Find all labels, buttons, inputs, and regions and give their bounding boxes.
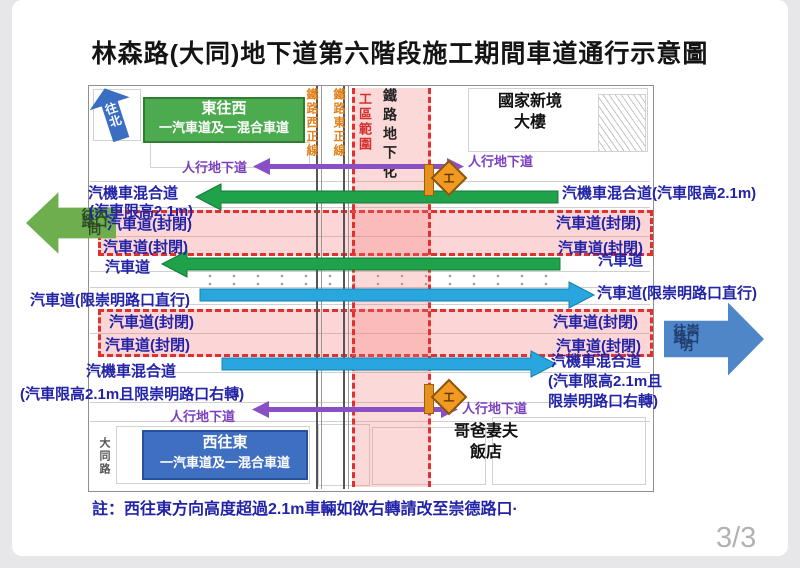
lane-label-right-car-w: 汽車道 xyxy=(598,249,643,270)
westbound-car-lane-arrow xyxy=(162,251,560,277)
footnote: 註：西往東方向高度超過2.1m車輛如欲右轉請改至崇德路口· xyxy=(92,495,518,519)
lane-label-left-closed-2: 汽車道(封閉) xyxy=(103,236,188,257)
ped-arrowhead-top-left xyxy=(253,158,270,175)
eastbound-car-lane-arrow xyxy=(200,282,594,308)
lane-label-right-mixed-w: 汽機車混合道(汽車限高2.1m) xyxy=(562,182,756,203)
ped-underpass-label-nw: 人行地下道 xyxy=(182,157,247,176)
pedestrian-underpass-arrow-bottom xyxy=(267,407,443,412)
datong-road-label: 大同路 xyxy=(96,437,112,476)
lane-label-right-mixed-e: 汽機車混合道 xyxy=(551,350,641,371)
ped-underpass-label-se: 人行地下道 xyxy=(462,398,527,417)
lane-label-left-closed-1: 汽車道(封閉) xyxy=(107,213,192,234)
lane-label-left-closed-4: 汽車道(封閉) xyxy=(105,334,190,355)
hotel-line1: 哥爸妻夫 xyxy=(436,422,536,443)
national-building-line2: 大樓 xyxy=(468,113,592,134)
to-chongming-line2: 路口 xyxy=(667,332,705,347)
westbound-mixed-lane-arrow xyxy=(196,184,558,210)
pedestrian-underpass-arrow-top xyxy=(268,164,449,169)
ped-underpass-label-ne: 人行地下道 xyxy=(468,151,533,170)
lane-label-right-car-e: 汽車道(限崇明路口直行) xyxy=(597,282,757,303)
national-building-line1: 國家新境 xyxy=(468,92,592,113)
construction-sign-glyph: 工 xyxy=(438,167,460,189)
national-building-label: 國家新境 大樓 xyxy=(468,92,592,134)
ped-arrowhead-bottom-left xyxy=(252,401,269,418)
page-indicator: 3/3 xyxy=(716,522,756,555)
lane-label-right-mixed-e-limit1: (汽車限高2.1m且 xyxy=(548,370,662,391)
hotel-line2: 飯店 xyxy=(436,443,536,464)
page-title: 林森路(大同)地下道第六階段施工期間車道通行示意圖 xyxy=(0,34,800,70)
ped-underpass-label-sw: 人行地下道 xyxy=(170,406,235,425)
lane-label-left-car-w: 汽車道 xyxy=(105,256,150,277)
w2e-lanes: 一汽車道及一混合車道 xyxy=(144,454,306,472)
lane-label-right-closed-1: 汽車道(封閉) xyxy=(556,212,641,233)
lane-label-right-mixed-e-limit2: 限崇明路口右轉) xyxy=(548,390,658,411)
hotel-label: 哥爸妻夫 飯店 xyxy=(436,422,536,464)
lane-label-right-closed-3: 汽車道(封閉) xyxy=(553,311,638,332)
west-to-east-box: 西往東 一汽車道及一混合車道 xyxy=(142,430,308,480)
screenshot-stage: 鐵路西正線 鐵路東正線 工區範圍 鐵路地下化 工 工 往北 東往西 一汽車道及一… xyxy=(0,0,800,568)
e2w-direction: 東往西 xyxy=(145,99,303,119)
lane-label-left-closed-3: 汽車道(封閉) xyxy=(109,311,194,332)
east-to-west-box: 東往西 一汽車道及一混合車道 xyxy=(143,97,305,143)
eastbound-mixed-lane-arrow xyxy=(222,351,556,377)
lane-label-left-mixed-e-limit: (汽車限高2.1m且限崇明路口右轉) xyxy=(20,383,244,404)
construction-sign-glyph: 工 xyxy=(438,386,460,408)
lane-label-left-car-e: 汽車道(限崇明路口直行) xyxy=(30,289,190,310)
e2w-lanes: 一汽車道及一混合車道 xyxy=(145,119,303,137)
lane-label-left-mixed-e: 汽機車混合道 xyxy=(86,360,176,381)
w2e-direction: 西往東 xyxy=(144,432,306,454)
